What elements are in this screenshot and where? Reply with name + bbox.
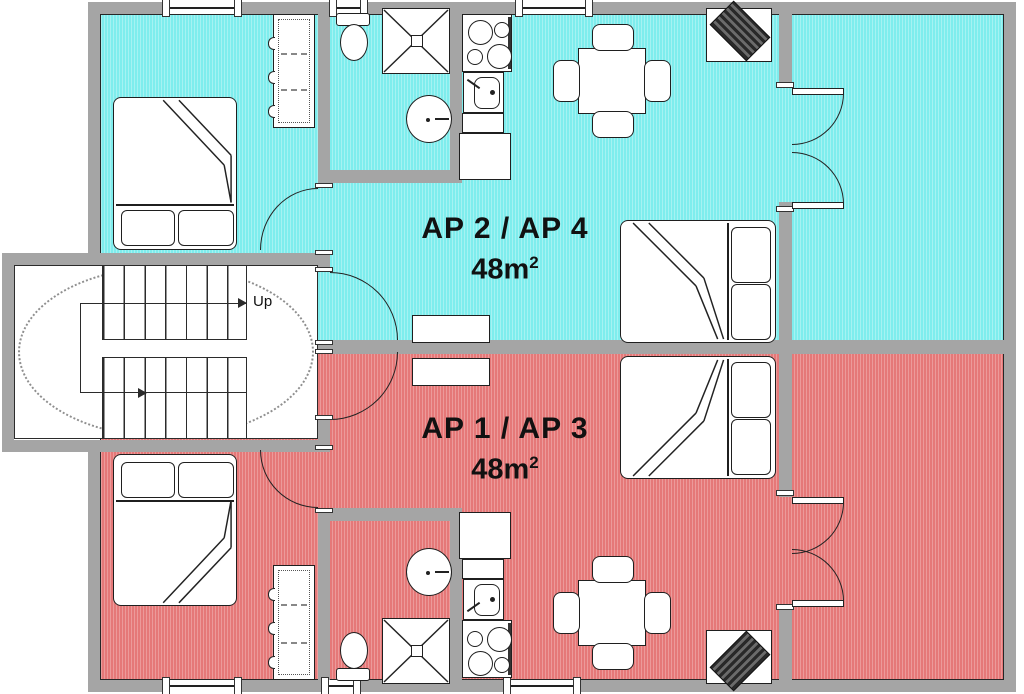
apartment-label-cyan: AP 2 / AP 4 48m2 (370, 212, 640, 287)
door-jamb (315, 508, 333, 513)
window (506, 680, 578, 692)
chair (592, 111, 634, 138)
wall-right (1004, 2, 1016, 692)
wall-rbed-a (779, 2, 792, 88)
window (165, 680, 239, 692)
wall-left-upper (88, 2, 100, 254)
double-bed (620, 356, 776, 479)
kitchen-sink (463, 579, 504, 620)
stove (462, 14, 512, 72)
double-bed (113, 97, 237, 250)
floor-plan: Up (0, 0, 1024, 694)
wall-bath1-bottom (330, 170, 462, 183)
kitchen-counter (462, 559, 504, 579)
door-jamb (315, 445, 333, 450)
chair (553, 592, 580, 634)
chair (592, 556, 634, 583)
stair-up-arrow (238, 298, 247, 308)
stairs-up-label: Up (253, 293, 272, 310)
door-jamb (315, 349, 333, 354)
door-jamb (315, 340, 333, 345)
dining-table (578, 48, 646, 114)
chair (553, 60, 580, 102)
double-bed (620, 220, 776, 343)
wall-stair-top (100, 253, 330, 265)
chair (644, 60, 671, 102)
toilet-bowl (340, 632, 368, 669)
apartment-name: AP 1 / AP 3 (370, 412, 640, 446)
apartment-name: AP 2 / AP 4 (370, 212, 640, 246)
wall-vestibule-top (2, 253, 100, 265)
door-jamb (315, 183, 333, 188)
kitchen-cabinet (459, 133, 511, 180)
chair (644, 592, 671, 634)
chair (592, 643, 634, 670)
stove (462, 620, 512, 678)
window (518, 2, 590, 14)
window (324, 680, 358, 692)
door-leaf (792, 497, 844, 504)
wall-left-lower (88, 440, 100, 692)
apartment-label-red: AP 1 / AP 3 48m2 (370, 412, 640, 487)
door-jamb (315, 250, 333, 255)
kitchen-sink (463, 72, 504, 113)
apartment-area: 48m2 (370, 446, 640, 487)
wall-mid-e (318, 508, 330, 680)
door-leaf (792, 600, 844, 607)
wall-vestibule-bottom (2, 440, 100, 452)
toilet-bowl (340, 24, 368, 61)
wall-rbed-d (779, 607, 792, 680)
sideboard (412, 315, 490, 343)
area-exponent: 2 (529, 453, 538, 472)
dining-table (578, 580, 646, 646)
area-value: 48m (471, 454, 529, 486)
apartment-area: 48m2 (370, 246, 640, 287)
toilet (336, 668, 370, 681)
stair-direction-arrow (138, 388, 147, 398)
window (165, 2, 239, 14)
area-exponent: 2 (529, 253, 538, 272)
chair (592, 24, 634, 51)
wall-bath2-top (330, 508, 462, 521)
double-bed (113, 454, 237, 606)
sideboard (412, 358, 490, 386)
door-jamb (776, 490, 794, 496)
shower (382, 8, 450, 74)
wall-rbed-b (779, 202, 792, 340)
door-leaf (792, 88, 844, 95)
kitchen-cabinet (459, 512, 511, 559)
area-value: 48m (471, 254, 529, 286)
door-jamb (315, 267, 333, 272)
washbasin (406, 95, 452, 143)
door-jamb (315, 415, 333, 420)
stair-railing (80, 303, 247, 393)
kitchen-counter (462, 113, 504, 133)
wall-mid-a (318, 2, 330, 188)
shower (382, 618, 450, 684)
washbasin (406, 548, 452, 596)
wardrobe (273, 14, 315, 128)
wall-vestibule-left (2, 253, 14, 452)
wardrobe (273, 565, 315, 680)
door-leaf (792, 202, 844, 209)
wall-rbed-c (779, 354, 792, 497)
